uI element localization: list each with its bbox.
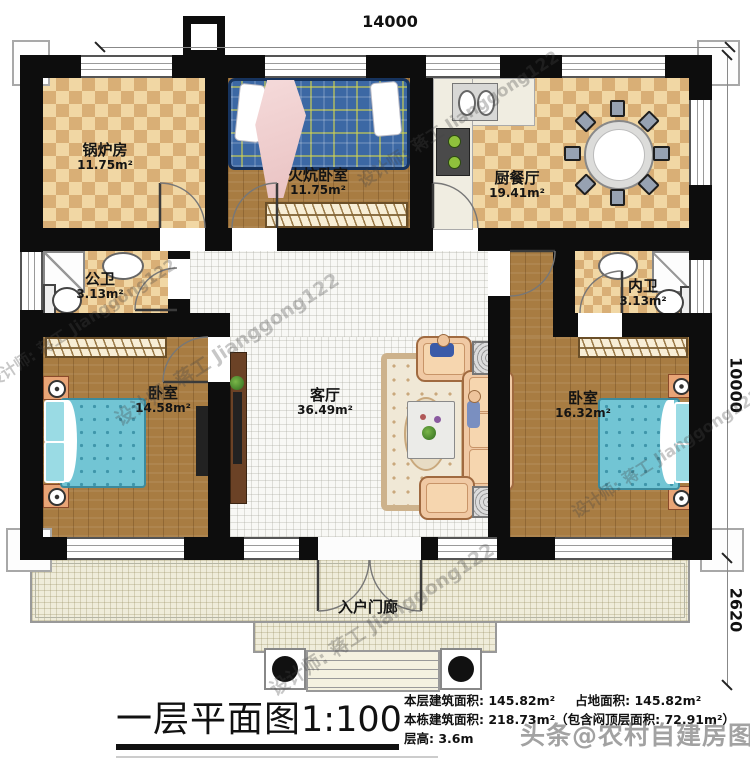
window bbox=[67, 537, 184, 560]
wall bbox=[168, 251, 190, 259]
bed-pillow bbox=[44, 441, 66, 483]
column-circle bbox=[272, 656, 298, 682]
wall bbox=[553, 313, 578, 337]
room-area: 3.13m² bbox=[76, 288, 123, 301]
burner bbox=[448, 156, 461, 169]
porch-column bbox=[440, 648, 482, 690]
room-name: 内卫 bbox=[619, 278, 666, 295]
room-name: 公卫 bbox=[76, 271, 123, 288]
burner bbox=[448, 135, 461, 148]
dining-chair bbox=[653, 146, 670, 161]
wall bbox=[672, 537, 712, 560]
room-area: 3.13m² bbox=[619, 295, 666, 308]
porch-column bbox=[264, 648, 306, 690]
dimension-height-main: 10000 bbox=[727, 357, 746, 413]
room-label-kitchen-dining: 厨餐厅 19.41m² bbox=[489, 170, 545, 200]
wall bbox=[277, 228, 433, 251]
wall bbox=[168, 299, 190, 313]
window bbox=[81, 55, 172, 78]
wall bbox=[172, 55, 265, 78]
wall bbox=[208, 382, 230, 537]
dining-chair bbox=[564, 146, 581, 161]
wardrobe bbox=[45, 337, 167, 358]
room-label-ensuite-bath: 内卫 3.13m² bbox=[619, 278, 666, 308]
room-name: 卧室 bbox=[555, 390, 611, 407]
wardrobe bbox=[578, 337, 688, 358]
window bbox=[20, 252, 43, 310]
window bbox=[689, 260, 712, 313]
wall bbox=[500, 55, 562, 78]
room-label-bedroom-left: 卧室 14.58m² bbox=[135, 385, 191, 415]
room-name: 卧室 bbox=[135, 385, 191, 402]
kang-wardrobe bbox=[265, 202, 408, 228]
lamp bbox=[673, 490, 690, 507]
person-figure bbox=[428, 334, 458, 360]
person-head bbox=[437, 334, 450, 347]
wall bbox=[20, 537, 67, 560]
dimension-line-top bbox=[100, 47, 730, 48]
room-name: 厨餐厅 bbox=[489, 170, 545, 187]
person-figure bbox=[464, 390, 484, 430]
tv bbox=[233, 392, 242, 464]
window bbox=[438, 537, 497, 560]
room-label-boiler: 锅炉房 11.75m² bbox=[77, 142, 133, 172]
title-underline-thin bbox=[116, 756, 438, 758]
room-label-living: 客厅 36.49m² bbox=[297, 387, 353, 417]
sink-basin bbox=[477, 90, 495, 116]
plant bbox=[230, 376, 244, 390]
window bbox=[555, 537, 672, 560]
footprint-area: 占地面积: 145.82m² bbox=[575, 693, 701, 708]
wall bbox=[410, 78, 433, 228]
window bbox=[426, 55, 500, 78]
sink-basin bbox=[458, 90, 476, 116]
kitchen-sink bbox=[452, 83, 498, 121]
wall bbox=[622, 313, 712, 337]
title-text: 一层平面图 bbox=[116, 699, 301, 740]
footer-watermark: 头条@农村自建房图纸 bbox=[520, 716, 750, 752]
lamp bbox=[48, 380, 66, 398]
porch-label: 入户门廊 bbox=[338, 599, 398, 616]
window bbox=[562, 55, 665, 78]
wall bbox=[689, 55, 712, 100]
dimension-width: 14000 bbox=[362, 12, 418, 31]
wall bbox=[689, 313, 712, 560]
wall bbox=[20, 55, 43, 252]
room-area: 36.49m² bbox=[297, 404, 353, 417]
floor-area: 本层建筑面积: 145.82m² bbox=[404, 693, 555, 708]
porch-steps bbox=[306, 650, 440, 692]
wall bbox=[421, 537, 438, 560]
person-body bbox=[467, 401, 480, 428]
window bbox=[265, 55, 366, 78]
living-room-floor bbox=[190, 251, 488, 337]
stats-line-1: 本层建筑面积: 145.82m²占地面积: 145.82m² bbox=[404, 691, 735, 710]
wall bbox=[553, 251, 575, 313]
wall bbox=[497, 537, 555, 560]
wall bbox=[20, 310, 43, 560]
nightstand bbox=[43, 376, 69, 400]
room-label-public-bath: 公卫 3.13m² bbox=[76, 271, 123, 301]
room-area: 11.75m² bbox=[77, 159, 133, 172]
dimension-height-porch: 2620 bbox=[727, 588, 746, 633]
room-area: 14.58m² bbox=[135, 402, 191, 415]
floor-plan: 锅炉房 11.75m² 火炕卧室 11.75m² 厨餐厅 19.41m² 公卫 … bbox=[0, 0, 750, 765]
wall bbox=[488, 296, 510, 537]
person-head bbox=[468, 390, 481, 403]
room-label-bedroom-right: 卧室 16.32m² bbox=[555, 390, 611, 420]
armchair bbox=[419, 476, 475, 520]
dining-chair bbox=[610, 100, 625, 117]
wall bbox=[43, 228, 160, 251]
title-underline bbox=[116, 744, 399, 750]
wall bbox=[478, 228, 712, 251]
wall bbox=[184, 537, 244, 560]
kang-pillow bbox=[370, 81, 403, 137]
room-name: 客厅 bbox=[297, 387, 353, 404]
wall bbox=[20, 313, 230, 337]
flower-dot bbox=[420, 414, 426, 420]
porch-name: 入户门廊 bbox=[338, 599, 398, 616]
lamp bbox=[48, 488, 66, 506]
coffee-table bbox=[407, 401, 455, 459]
window bbox=[244, 537, 299, 560]
tv bbox=[196, 406, 208, 476]
room-area: 19.41m² bbox=[489, 187, 545, 200]
window bbox=[689, 100, 712, 185]
room-area: 11.75m² bbox=[288, 184, 348, 197]
drawing-title: 一层平面图1:100 bbox=[116, 690, 402, 742]
room-area: 16.32m² bbox=[555, 407, 611, 420]
wall bbox=[205, 228, 232, 251]
bed-pillow bbox=[44, 400, 66, 443]
flower-dot bbox=[434, 416, 441, 423]
flowers bbox=[422, 426, 436, 440]
bedroom-right-vestibule-floor bbox=[510, 251, 553, 337]
wall bbox=[205, 78, 228, 228]
room-label-kang-bedroom: 火炕卧室 11.75m² bbox=[288, 167, 348, 197]
room-name: 火炕卧室 bbox=[288, 167, 348, 184]
stove bbox=[436, 128, 470, 176]
title-scale: 1:100 bbox=[301, 700, 402, 740]
cushion bbox=[426, 483, 468, 513]
dining-chair bbox=[610, 189, 625, 206]
sink bbox=[598, 252, 638, 280]
column-circle bbox=[448, 656, 474, 682]
lamp bbox=[673, 378, 690, 395]
entry-door-opening bbox=[318, 537, 421, 560]
wall bbox=[366, 55, 426, 78]
dining-table-top bbox=[593, 129, 645, 181]
bed-duvet bbox=[660, 400, 674, 484]
wall bbox=[299, 537, 318, 560]
room-name: 锅炉房 bbox=[77, 142, 133, 159]
